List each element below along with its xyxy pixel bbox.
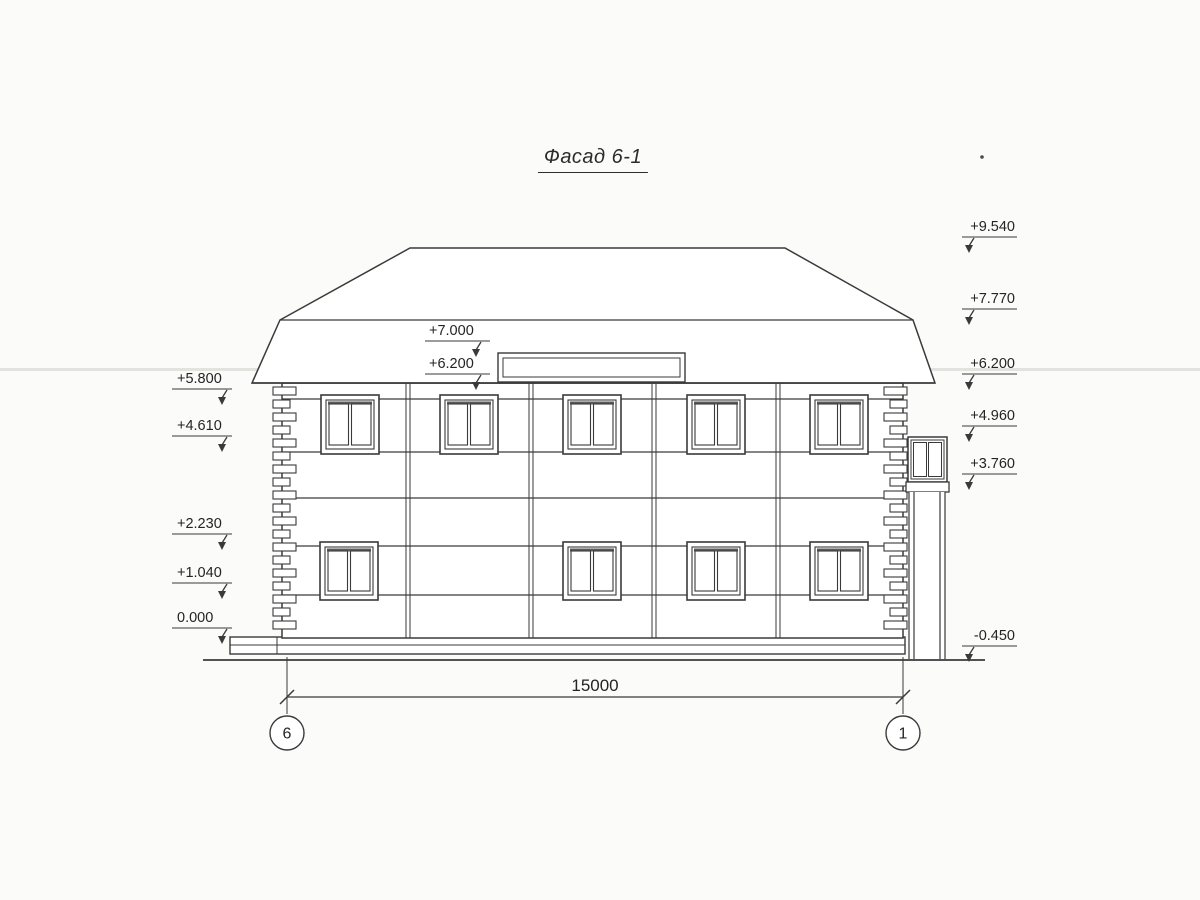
quoin-block: [884, 569, 907, 577]
elevation-arrow: [969, 427, 974, 435]
elevation-label: +5.800: [177, 371, 222, 387]
elevation-arrow-head: [965, 317, 973, 325]
window-casement: [718, 404, 738, 445]
window-casement: [594, 404, 614, 445]
window-casement: [571, 404, 591, 445]
quoin-block: [273, 621, 296, 629]
elevation-label: +9.540: [970, 219, 1015, 235]
quoin-block: [884, 439, 907, 447]
quoin-block: [273, 465, 296, 473]
window-casement: [818, 404, 838, 445]
window-casement: [594, 551, 614, 591]
quoin-block: [890, 530, 907, 538]
quoin-block: [273, 400, 290, 408]
window-casement: [328, 551, 348, 591]
quoin-block: [884, 621, 907, 629]
elevation-arrow: [222, 584, 227, 592]
quoin-block: [884, 387, 907, 395]
window-casement: [841, 551, 861, 591]
window-casement: [718, 551, 738, 591]
quoin-block: [273, 413, 296, 421]
window-casement: [695, 404, 715, 445]
elevation-arrow: [969, 310, 974, 318]
quoin-block: [273, 556, 290, 564]
elevation-label: +1.040: [177, 565, 222, 581]
chimney-box-panel: [929, 443, 942, 477]
window-casement: [351, 551, 371, 591]
quoin-block: [273, 569, 296, 577]
elevation-arrow-head: [218, 591, 226, 599]
window-casement: [571, 551, 591, 591]
elevation-arrow: [222, 629, 227, 637]
quoin-block: [890, 426, 907, 434]
elevation-label: +4.610: [177, 418, 222, 434]
quoin-block: [273, 504, 290, 512]
quoin-block: [890, 608, 907, 616]
quoin-block: [273, 608, 290, 616]
quoin-block: [273, 387, 296, 395]
quoin-block: [890, 504, 907, 512]
window-casement: [329, 404, 349, 445]
window-casement: [448, 404, 468, 445]
window-casement: [818, 551, 838, 591]
quoin-block: [273, 530, 290, 538]
quoin-block: [273, 478, 290, 486]
elevation-arrow: [969, 475, 974, 483]
quoin-block: [890, 452, 907, 460]
window-casement: [841, 404, 861, 445]
elevation-label: +7.000: [429, 323, 474, 339]
elevation-label: 0.000: [177, 610, 213, 626]
quoin-block: [273, 491, 296, 499]
quoin-block: [890, 400, 907, 408]
elevation-label: -0.450: [974, 628, 1015, 644]
elevation-arrow-head: [218, 542, 226, 550]
quoin-block: [273, 582, 290, 590]
elevation-label: +3.760: [970, 456, 1015, 472]
elevation-arrow: [969, 375, 974, 383]
elevation-arrow-head: [965, 382, 973, 390]
quoin-block: [884, 465, 907, 473]
elevation-label: +6.200: [970, 356, 1015, 372]
elevation-arrow-head: [965, 245, 973, 253]
quoin-block: [890, 582, 907, 590]
quoin-block: [884, 543, 907, 551]
elevation-arrow: [222, 390, 227, 398]
dimension-label: 15000: [571, 676, 618, 695]
quoin-block: [273, 439, 296, 447]
quoin-block: [884, 517, 907, 525]
elevation-arrow-head: [218, 636, 226, 644]
scan-speck: [980, 155, 984, 159]
facade-elevation-drawing: +5.800+4.610+2.230+1.0400.000+7.000+6.20…: [0, 0, 1200, 900]
elevation-label: +4.960: [970, 408, 1015, 424]
quoin-block: [273, 452, 290, 460]
elevation-arrow: [222, 535, 227, 543]
elevation-arrow: [969, 647, 974, 655]
window-casement: [695, 551, 715, 591]
drawing-sheet: Фасад 6-1 +5.800+4.610+2.230+1.0400.000+…: [0, 0, 1200, 900]
quoin-block: [884, 595, 907, 603]
quoin-block: [273, 517, 296, 525]
elevation-label: +6.200: [429, 356, 474, 372]
chimney-cap-band: [906, 482, 949, 492]
elevation-arrow-head: [218, 444, 226, 452]
quoin-block: [273, 595, 296, 603]
attic-sign-board-inner: [503, 358, 680, 377]
axis-bubble-label: 6: [283, 726, 292, 743]
elevation-arrow-head: [965, 434, 973, 442]
quoin-block: [890, 478, 907, 486]
quoin-block: [884, 491, 907, 499]
elevation-label: +2.230: [177, 516, 222, 532]
quoin-block: [884, 413, 907, 421]
axis-bubble-label: 1: [899, 726, 908, 743]
window-casement: [352, 404, 372, 445]
quoin-block: [890, 556, 907, 564]
elevation-arrow: [222, 437, 227, 445]
chimney-box-panel: [914, 443, 927, 477]
elevation-arrow-head: [965, 482, 973, 490]
elevation-arrow-head: [218, 397, 226, 405]
quoin-block: [273, 426, 290, 434]
window-casement: [471, 404, 491, 445]
elevation-arrow: [969, 238, 974, 246]
elevation-label: +7.770: [970, 291, 1015, 307]
quoin-block: [273, 543, 296, 551]
